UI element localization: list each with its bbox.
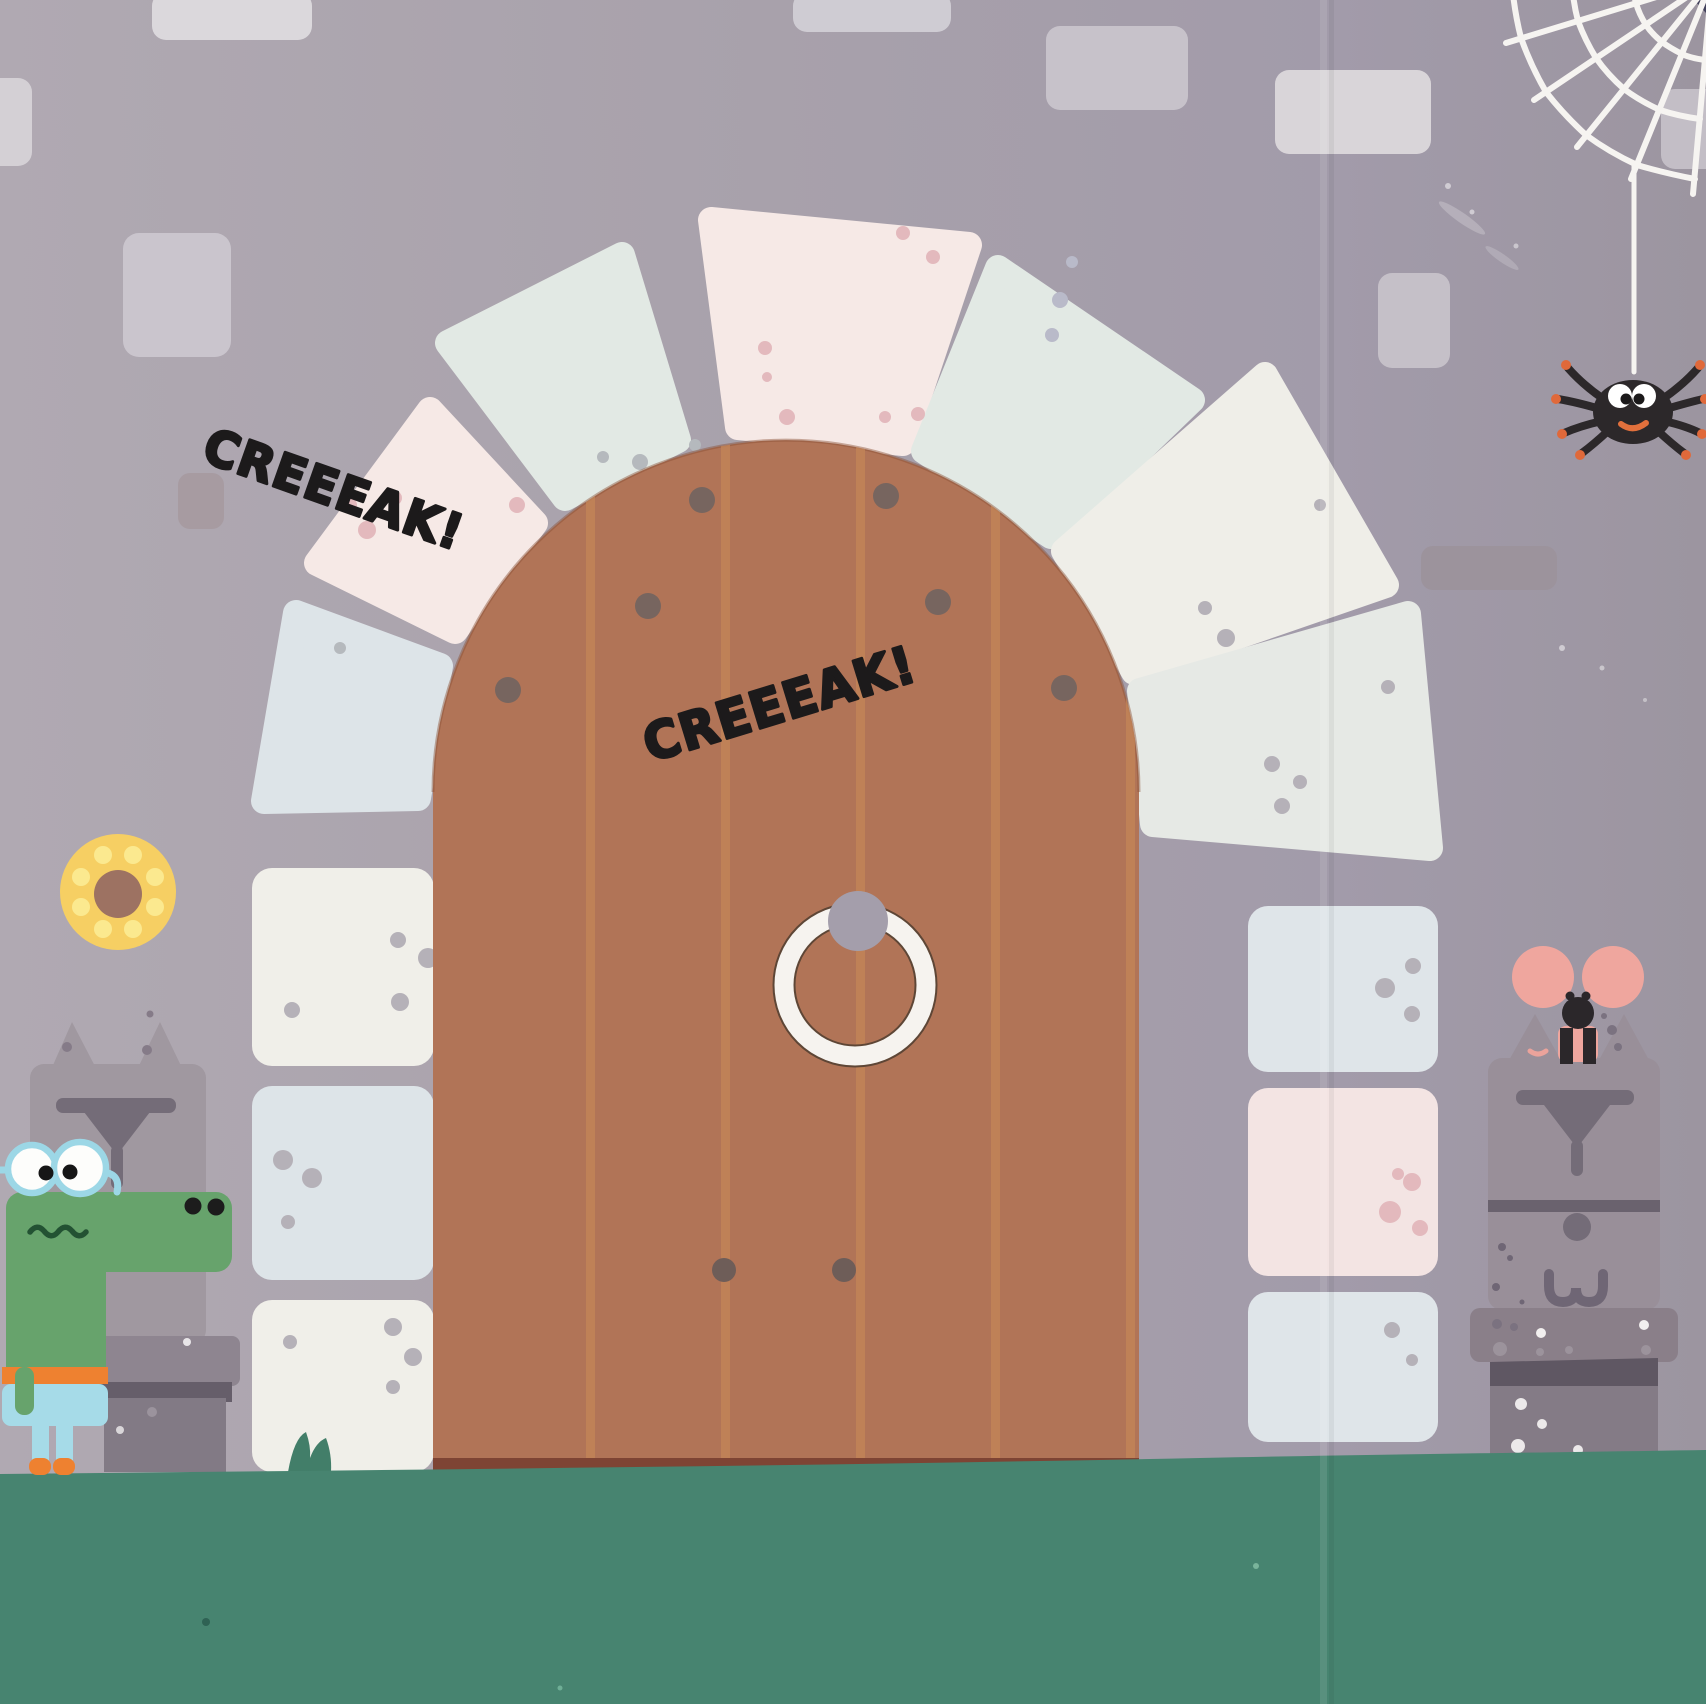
croc-eye-right <box>54 1142 106 1194</box>
croc-nostril-left <box>185 1198 202 1215</box>
statue-left-plinth <box>90 1336 240 1386</box>
croc-body <box>6 1255 106 1371</box>
storybook-page: CREEEAK! CREEEAK! <box>0 0 1706 1704</box>
statue-right-brow <box>1516 1090 1634 1105</box>
mouse-tail <box>1530 1051 1546 1054</box>
statue-right-belt <box>1488 1200 1660 1212</box>
croc-foot-left <box>29 1458 51 1475</box>
mouse-head <box>1562 997 1594 1029</box>
spider-pupil-right <box>1634 394 1645 405</box>
croc-nostril-right <box>208 1199 225 1216</box>
statue-left-brow <box>56 1098 176 1113</box>
mouse-leg-right <box>1583 1028 1596 1064</box>
croc-tail <box>15 1367 34 1415</box>
arch-column-right <box>1248 906 1438 1442</box>
arch-column-left <box>252 868 438 1472</box>
spider-pupil-left <box>1621 394 1632 405</box>
croc-pupil-left <box>39 1166 54 1181</box>
mouse-ear-left <box>1512 946 1574 1008</box>
page-crease <box>1320 0 1334 1704</box>
donut-hole <box>94 870 142 918</box>
mouse-ear-right <box>1582 946 1644 1008</box>
scene-illustration: CREEEAK! CREEEAK! <box>0 0 1706 1704</box>
castle-door <box>433 392 1139 1482</box>
donut <box>60 834 176 950</box>
croc-glasses <box>0 1142 118 1194</box>
croc-pupil-right <box>63 1165 78 1180</box>
croc-foot-right <box>53 1458 75 1475</box>
ground-surface <box>0 1450 1706 1704</box>
statue-right-dot <box>1563 1213 1591 1241</box>
handle-knob <box>828 891 888 951</box>
ground <box>0 1432 1706 1704</box>
mouse-leg-left <box>1560 1028 1573 1064</box>
spider-body <box>1593 380 1673 444</box>
